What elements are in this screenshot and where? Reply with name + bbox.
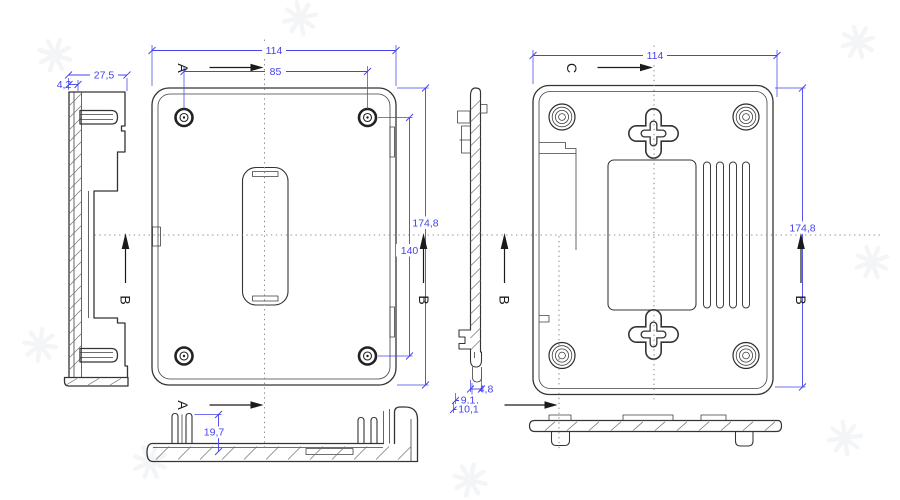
dim-back-overall-height: 174,8 bbox=[775, 85, 821, 391]
dim-label: 174,8 bbox=[412, 218, 438, 230]
dim-profile-hook: 4,8 bbox=[467, 372, 493, 396]
arrow-head-up bbox=[420, 233, 428, 249]
left-view-bottom-rail-lines bbox=[80, 353, 113, 358]
arrow-head-right bbox=[545, 401, 558, 408]
dim-label: 85 bbox=[270, 66, 282, 78]
dim-left-wall-thickness: 4,2 bbox=[57, 79, 82, 91]
back-bottom-snap-tabs bbox=[552, 432, 754, 447]
bump bbox=[623, 415, 673, 421]
left-view-outline bbox=[69, 92, 128, 377]
front-left-edge-notch bbox=[153, 227, 161, 246]
watermark-mark bbox=[451, 461, 490, 500]
watermark-mark bbox=[827, 420, 863, 456]
left-view-top-rail bbox=[80, 111, 118, 125]
view-left-side bbox=[65, 92, 129, 386]
boss-ring bbox=[555, 110, 568, 123]
arrow-head-right bbox=[251, 401, 264, 408]
back-boss-top-right bbox=[733, 104, 759, 130]
engineering-drawing: 114 85 174,8 140 bbox=[0, 0, 900, 500]
dim-profile-overall-depth: 10,1 bbox=[450, 402, 482, 416]
left-view-bottom-rail bbox=[80, 349, 118, 363]
view-arrow-b-front: B bbox=[416, 233, 432, 305]
boss-ring bbox=[549, 104, 575, 130]
boss-center bbox=[183, 355, 185, 357]
front-center-slot-top bbox=[253, 172, 279, 177]
extension-lines bbox=[378, 118, 413, 357]
watermark-mark bbox=[22, 327, 58, 363]
watermark-mark bbox=[851, 241, 892, 282]
front-right-edge-relief-top bbox=[390, 127, 395, 157]
bump bbox=[701, 415, 726, 421]
front-screw-boss-bottom-right bbox=[359, 348, 376, 365]
front-screw-boss-top-left bbox=[176, 109, 193, 126]
left-view-base-plate bbox=[65, 378, 129, 387]
back-keyhole-top bbox=[637, 117, 671, 151]
view-direction-labels: A C A B B B bbox=[117, 63, 809, 410]
front-right-edge-relief-bottom bbox=[390, 307, 395, 337]
dim-label: 4,2 bbox=[57, 79, 72, 91]
watermark-mark bbox=[281, 0, 319, 37]
front-bottom-right-posts bbox=[358, 418, 377, 444]
profile-foot bbox=[459, 330, 482, 367]
boss-ring bbox=[733, 343, 759, 369]
view-back bbox=[533, 86, 773, 395]
view-arrow-b-left: B bbox=[117, 233, 133, 305]
dim-label: 140 bbox=[401, 245, 419, 257]
view-label-b-left: B bbox=[117, 295, 133, 304]
view-label-a-top: A bbox=[175, 63, 191, 73]
front-bottom-hatch bbox=[156, 447, 411, 460]
dimensions: 114 85 174,8 140 bbox=[57, 45, 821, 456]
dim-front-hole-spacing-width: 85 bbox=[181, 66, 372, 110]
boss-ring bbox=[743, 114, 750, 121]
boss-ring bbox=[733, 104, 759, 130]
front-center-slot-bottom bbox=[253, 296, 279, 301]
dim-label: 114 bbox=[266, 45, 283, 57]
front-screw-boss-bottom-left bbox=[176, 348, 193, 365]
back-bottom-hatch bbox=[545, 422, 775, 431]
view-label-b-back: B bbox=[793, 295, 809, 304]
view-label-a-bottom: A bbox=[175, 400, 191, 410]
profile-top-clips bbox=[458, 105, 488, 154]
boss-ring bbox=[743, 352, 750, 359]
back-keyhole-bottom bbox=[637, 318, 671, 352]
view-arrow-c-top: C bbox=[564, 63, 653, 73]
view-label-b-profile: B bbox=[496, 295, 512, 304]
back-boss-bottom-left bbox=[549, 343, 575, 369]
view-arrow-b-back: B bbox=[793, 233, 809, 305]
back-left-edge-step bbox=[540, 143, 577, 323]
dim-back-overall-width: 114 bbox=[530, 50, 781, 98]
view-front bbox=[152, 88, 396, 385]
bump bbox=[549, 415, 571, 421]
dim-front-hole-spacing-height: 140 bbox=[378, 114, 423, 360]
view-back-bottom bbox=[530, 415, 782, 446]
boss-center bbox=[183, 116, 185, 118]
watermark-mark bbox=[836, 20, 880, 64]
dim-label: 19,7 bbox=[204, 427, 225, 439]
boss-center bbox=[366, 355, 368, 357]
dim-front-overall-height: 174,8 bbox=[397, 85, 444, 389]
arrow-head-up bbox=[797, 233, 805, 249]
front-bottom-center-ledge bbox=[306, 449, 353, 455]
cad-drawing-canvas: 114 85 174,8 140 bbox=[0, 0, 900, 500]
dim-label: 10,1 bbox=[458, 404, 479, 416]
boss-ring bbox=[559, 352, 566, 359]
front-inner-outline bbox=[158, 94, 390, 379]
view-arrow-a-bottom: A bbox=[175, 400, 264, 410]
arrow-head-right bbox=[251, 64, 264, 71]
front-screw-boss-top-right bbox=[359, 109, 376, 126]
view-label-b-front: B bbox=[416, 295, 432, 304]
dim-label: 114 bbox=[647, 50, 664, 62]
boss-ring bbox=[555, 349, 568, 362]
arrow-head-up bbox=[122, 233, 130, 249]
left-view-top-rail-lines bbox=[80, 115, 113, 120]
boss-ring bbox=[739, 110, 752, 123]
boss-ring bbox=[739, 349, 752, 362]
dim-label: 4,8 bbox=[479, 384, 494, 396]
back-boss-bottom-right bbox=[733, 343, 759, 369]
boss-ring bbox=[559, 114, 566, 121]
view-label-c-top: C bbox=[564, 63, 580, 73]
view-front-bottom bbox=[147, 407, 418, 462]
watermark-mark bbox=[35, 35, 75, 75]
profile-body-hatch bbox=[471, 100, 481, 350]
vent-slot bbox=[743, 162, 750, 308]
view-arrow-bottom-right bbox=[505, 401, 558, 408]
dim-label: 174,8 bbox=[789, 223, 815, 235]
arrow-head-right bbox=[640, 64, 653, 71]
front-center-recess bbox=[243, 168, 289, 306]
back-boss-top-left bbox=[549, 104, 575, 130]
front-outer-outline bbox=[152, 88, 396, 385]
boss-ring bbox=[549, 343, 575, 369]
view-arrow-b-profile: B bbox=[496, 233, 512, 305]
back-bottom-top-bumps bbox=[549, 415, 726, 421]
boss-center bbox=[366, 116, 368, 118]
dim-label: 27,5 bbox=[94, 70, 115, 82]
